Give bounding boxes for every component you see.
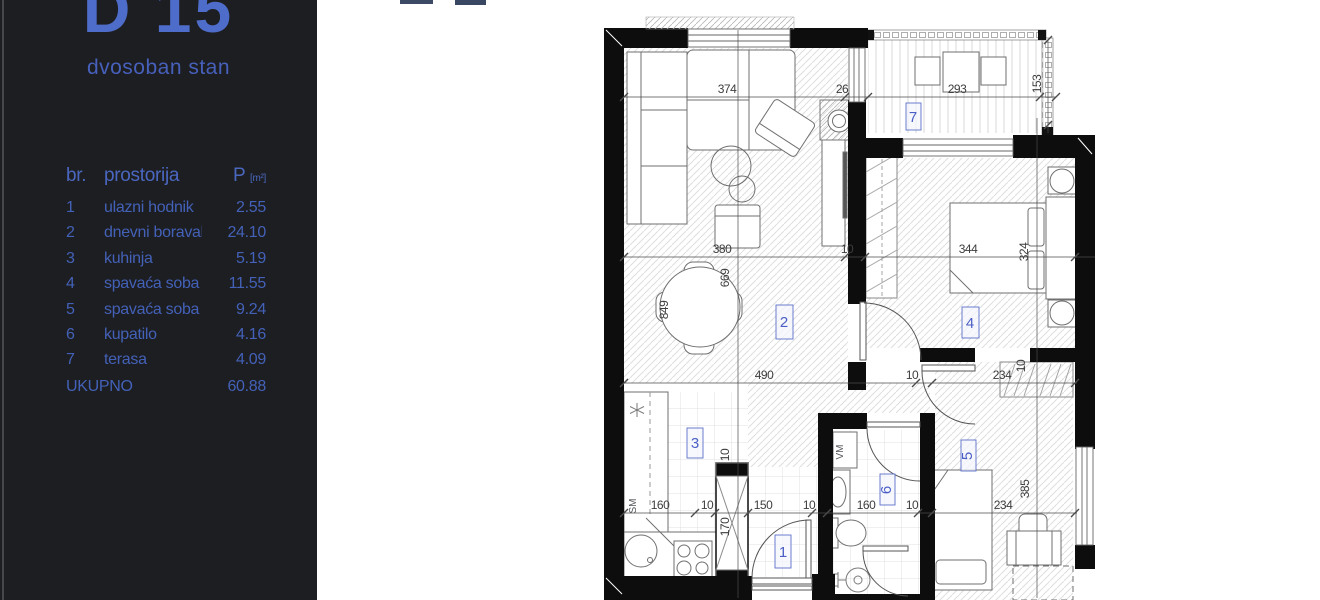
row-no: 7 bbox=[66, 347, 104, 372]
washer-label: VM bbox=[835, 445, 846, 460]
row-room: terasa bbox=[104, 347, 202, 372]
dim-terrace-width: 293 bbox=[948, 82, 967, 96]
dim-dining-849: 849 bbox=[657, 300, 671, 319]
total-spacer bbox=[104, 374, 202, 399]
header-room: prostorija bbox=[104, 160, 202, 195]
dim-bedroom5-depth: 385 bbox=[1018, 479, 1032, 498]
sidebar-edge-line bbox=[2, 0, 4, 600]
dim-shaft-10: 10 bbox=[718, 448, 732, 461]
row-no: 4 bbox=[66, 271, 104, 296]
table-row: 3 kuhinja 5.19 bbox=[66, 246, 266, 271]
row-area: 2.55 bbox=[202, 195, 266, 220]
dim-bedroom4-depth: 324 bbox=[1017, 242, 1031, 261]
dim-hall-10: 10 bbox=[803, 498, 816, 512]
row-area: 5.19 bbox=[202, 246, 266, 271]
dim-corridor-490: 490 bbox=[755, 368, 774, 382]
header-area: P [m²] bbox=[202, 160, 266, 195]
dim-kitchen-10: 10 bbox=[701, 498, 714, 512]
kitchen-sink bbox=[625, 535, 657, 567]
row-room: spavaća soba bbox=[104, 271, 202, 296]
row-room: kuhinja bbox=[104, 246, 202, 271]
total-value: 60.88 bbox=[202, 374, 266, 399]
row-area: 9.24 bbox=[202, 297, 266, 322]
row-room: spavaća soba bbox=[104, 297, 202, 322]
dim-bedroom5-234b: 234 bbox=[994, 498, 1013, 512]
row-no: 6 bbox=[66, 322, 104, 347]
dim-terrace-depth: 153 bbox=[1030, 74, 1044, 93]
corridor-floor-2 bbox=[818, 383, 930, 413]
room-2-label: 2 bbox=[780, 314, 788, 331]
dishwasher-label: SM bbox=[628, 499, 639, 514]
table-row: 1 ulazni hodnik 2.55 bbox=[66, 195, 266, 220]
table-row: 5 spavaća soba 9.24 bbox=[66, 297, 266, 322]
row-room: ulazni hodnik bbox=[104, 195, 202, 220]
dim-bath-10: 10 bbox=[906, 498, 919, 512]
row-room: dnevni boravak bbox=[104, 220, 202, 245]
dim-shaft-170: 170 bbox=[718, 517, 732, 536]
glass-door-terrace[interactable] bbox=[849, 48, 865, 102]
dim-dining-669: 669 bbox=[718, 268, 732, 287]
table-header: br. prostorija P [m²] bbox=[66, 160, 266, 195]
dim-wardrobe5-10: 10 bbox=[1014, 359, 1028, 372]
room-6-label: 6 bbox=[878, 486, 895, 494]
dim-living-380: 380 bbox=[713, 242, 732, 256]
dim-wall-26: 26 bbox=[836, 82, 849, 96]
unit-info-sidebar: D 15 dvosoban stan br. prostorija P [m²]… bbox=[0, 0, 317, 600]
dim-wall-10b: 10 bbox=[906, 368, 919, 382]
unit-code: D 15 bbox=[0, 0, 317, 42]
wardrobe-bedroom4 bbox=[866, 152, 897, 298]
table-row: 7 terasa 4.09 bbox=[66, 347, 266, 372]
row-area: 4.09 bbox=[202, 347, 266, 372]
row-area: 11.55 bbox=[202, 271, 266, 296]
dim-kitchen-160: 160 bbox=[651, 498, 670, 512]
dim-bedroom4-width: 344 bbox=[959, 242, 978, 256]
bed-bedroom5 bbox=[930, 470, 992, 590]
row-room: kupatilo bbox=[104, 322, 202, 347]
row-no: 5 bbox=[66, 297, 104, 322]
dim-bath-160: 160 bbox=[857, 498, 876, 512]
corridor-floor bbox=[748, 383, 818, 467]
row-area: 24.10 bbox=[202, 220, 266, 245]
window-bedroom4 bbox=[903, 139, 1013, 156]
row-no: 2 bbox=[66, 220, 104, 245]
unit-type: dvosoban stan bbox=[0, 56, 317, 80]
tv-cabinet bbox=[822, 140, 845, 246]
tv bbox=[843, 152, 847, 218]
total-label: UKUPNO bbox=[66, 374, 104, 399]
row-area: 4.16 bbox=[202, 322, 266, 347]
window-living bbox=[688, 29, 790, 47]
room-4-label: 4 bbox=[966, 315, 974, 332]
header-no: br. bbox=[66, 160, 104, 195]
dim-wall-10a: 10 bbox=[841, 242, 854, 256]
dim-hall-150: 150 bbox=[754, 498, 773, 512]
room-5-label: 5 bbox=[959, 452, 976, 460]
row-no: 3 bbox=[66, 246, 104, 271]
table-row: 4 spavaća soba 11.55 bbox=[66, 271, 266, 296]
dim-living-width: 374 bbox=[718, 82, 737, 96]
room-3-label: 3 bbox=[691, 435, 699, 452]
window-bedroom5 bbox=[1076, 447, 1093, 545]
table-row: 6 kupatilo 4.16 bbox=[66, 322, 266, 347]
table-row: 2 dnevni boravak 24.10 bbox=[66, 220, 266, 245]
dim-bedroom5-234a: 234 bbox=[993, 368, 1012, 382]
room-1-label: 1 bbox=[779, 544, 787, 561]
table-total-row: UKUPNO 60.88 bbox=[66, 374, 266, 399]
row-no: 1 bbox=[66, 195, 104, 220]
room-area-table: br. prostorija P [m²] 1 ulazni hodnik 2.… bbox=[66, 160, 266, 399]
window-sill-hatch bbox=[646, 17, 794, 29]
room-7-label: 7 bbox=[909, 109, 917, 126]
